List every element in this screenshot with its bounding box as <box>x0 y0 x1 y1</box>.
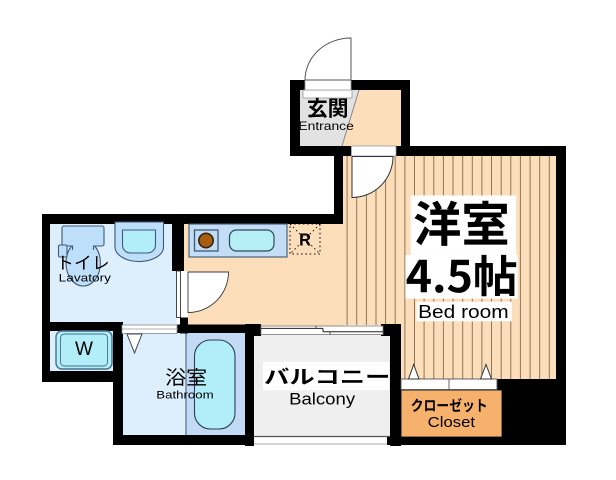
svg-text:Bathroom: Bathroom <box>156 390 213 402</box>
svg-text:Balcony: Balcony <box>289 391 356 409</box>
svg-text:Entrance: Entrance <box>298 119 354 133</box>
svg-text:R: R <box>299 230 311 250</box>
svg-text:Lavatory: Lavatory <box>59 272 112 284</box>
svg-text:Bed room: Bed room <box>418 301 509 322</box>
svg-text:Closet: Closet <box>428 415 475 431</box>
svg-text:W: W <box>75 339 93 360</box>
